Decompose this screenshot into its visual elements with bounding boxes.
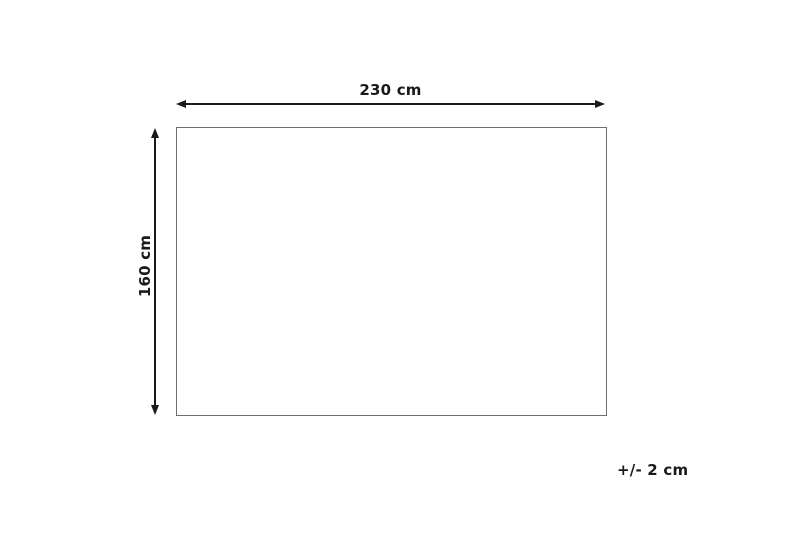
- width-dimension-arrow: [176, 99, 605, 108]
- height-dimension-label: 160 cm: [136, 235, 154, 297]
- arrowhead-down-icon: [151, 405, 159, 415]
- dimension-diagram: 230 cm 160 cm +/- 2 cm: [0, 0, 800, 533]
- tolerance-label: +/- 2 cm: [617, 461, 688, 479]
- product-outline-rectangle: [176, 127, 607, 416]
- arrowhead-right-icon: [595, 100, 605, 108]
- arrowhead-up-icon: [151, 128, 159, 138]
- width-arrow-line: [186, 103, 595, 105]
- width-dimension-label: 230 cm: [176, 81, 605, 99]
- arrowhead-left-icon: [176, 100, 186, 108]
